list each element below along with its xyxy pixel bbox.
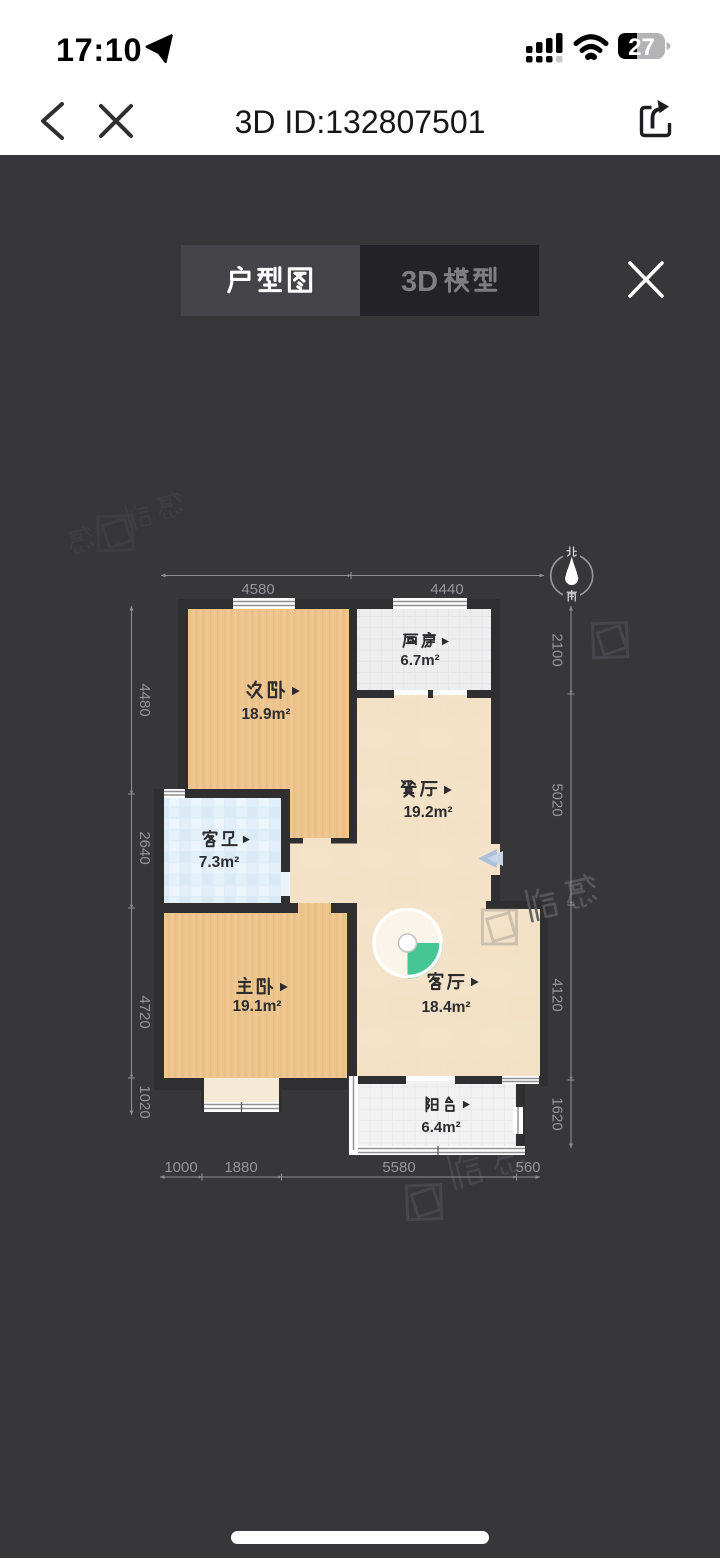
svg-text:3D: 3D bbox=[401, 266, 438, 298]
svg-text:1620: 1620 bbox=[549, 1097, 566, 1130]
svg-text:1020: 1020 bbox=[136, 1085, 153, 1118]
svg-text:6.4m²: 6.4m² bbox=[421, 1119, 460, 1136]
svg-text:3D ID:132807501: 3D ID:132807501 bbox=[235, 104, 486, 140]
svg-text:2100: 2100 bbox=[549, 633, 566, 666]
svg-text:5020: 5020 bbox=[549, 783, 566, 816]
svg-text:4120: 4120 bbox=[549, 978, 566, 1011]
svg-text:17:10: 17:10 bbox=[56, 32, 142, 68]
svg-text:4720: 4720 bbox=[136, 995, 153, 1028]
svg-text:4580: 4580 bbox=[241, 581, 274, 598]
svg-text:18.9m²: 18.9m² bbox=[241, 706, 290, 723]
svg-text:19.1m²: 19.1m² bbox=[232, 998, 281, 1015]
svg-text:5580: 5580 bbox=[382, 1159, 415, 1176]
svg-text:560: 560 bbox=[515, 1159, 540, 1176]
svg-text:6.7m²: 6.7m² bbox=[400, 652, 439, 669]
svg-text:4440: 4440 bbox=[430, 581, 463, 598]
svg-text:7.3m²: 7.3m² bbox=[199, 854, 240, 871]
svg-text:1880: 1880 bbox=[224, 1159, 257, 1176]
svg-text:19.2m²: 19.2m² bbox=[403, 804, 452, 821]
svg-text:2640: 2640 bbox=[136, 831, 153, 864]
svg-text:18.4m²: 18.4m² bbox=[421, 999, 470, 1016]
svg-text:27: 27 bbox=[628, 34, 655, 61]
svg-text:1000: 1000 bbox=[164, 1159, 197, 1176]
svg-text:4480: 4480 bbox=[136, 683, 153, 716]
